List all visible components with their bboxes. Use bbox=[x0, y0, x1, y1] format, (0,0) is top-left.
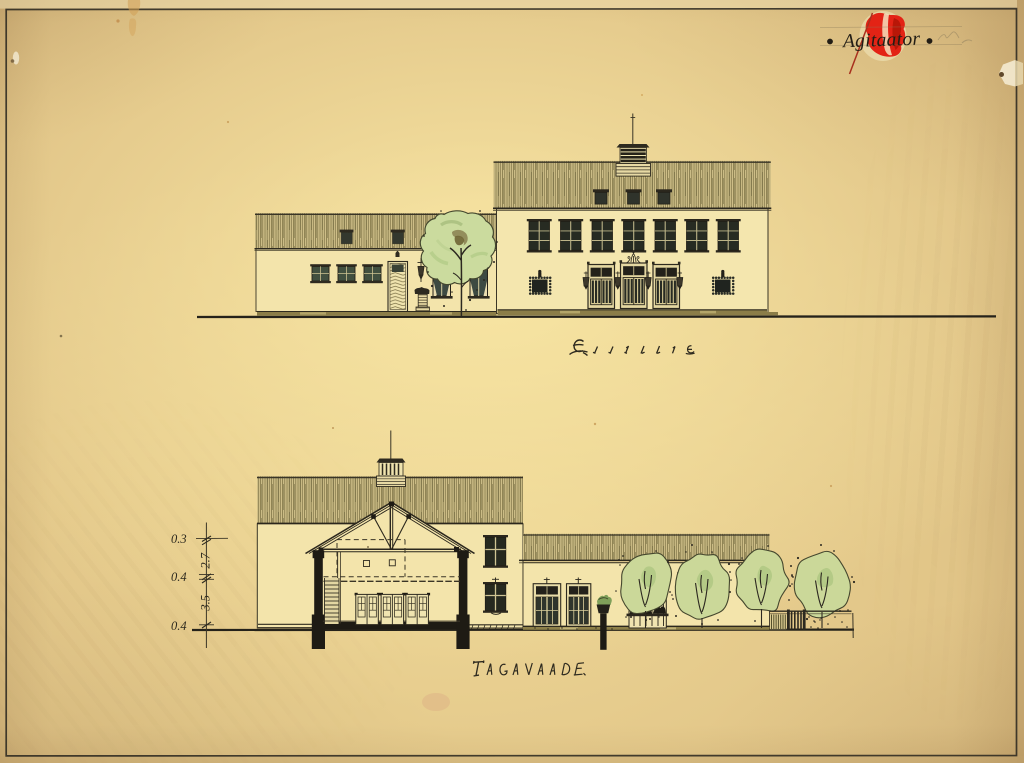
svg-text:0.4: 0.4 bbox=[171, 570, 187, 584]
svg-text:3.5: 3.5 bbox=[199, 595, 213, 612]
svg-text:0.4: 0.4 bbox=[171, 619, 187, 633]
svg-text:Agitaator: Agitaator bbox=[841, 29, 921, 53]
svg-text:2.7: 2.7 bbox=[199, 552, 213, 568]
svg-text:0.3: 0.3 bbox=[171, 532, 187, 546]
